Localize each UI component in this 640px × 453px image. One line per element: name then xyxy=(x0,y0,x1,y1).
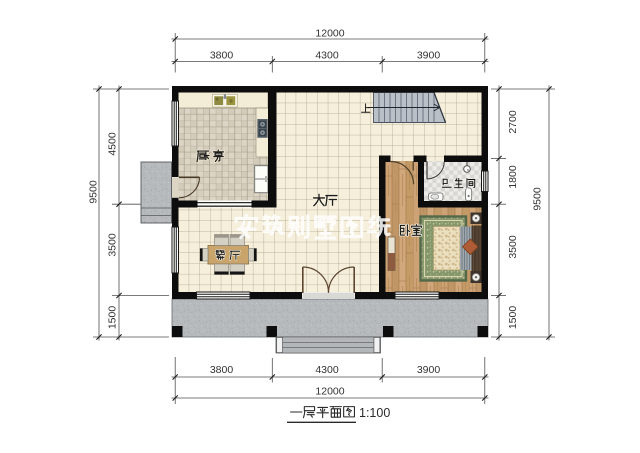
svg-text:3500: 3500 xyxy=(507,235,519,259)
svg-text:4500: 4500 xyxy=(107,132,119,156)
svg-text:9500: 9500 xyxy=(88,180,100,204)
svg-text:2700: 2700 xyxy=(507,110,519,134)
svg-text:3500: 3500 xyxy=(107,233,119,257)
svg-text:12000: 12000 xyxy=(315,386,344,398)
svg-text:1500: 1500 xyxy=(107,306,119,330)
svg-text:3800: 3800 xyxy=(210,364,234,376)
svg-text:4300: 4300 xyxy=(315,364,339,376)
svg-text:3900: 3900 xyxy=(417,364,441,376)
svg-text:1800: 1800 xyxy=(507,165,519,189)
svg-text:1:100: 1:100 xyxy=(359,406,390,420)
svg-text:3900: 3900 xyxy=(417,50,441,62)
svg-text:12000: 12000 xyxy=(315,28,344,40)
svg-text:1500: 1500 xyxy=(507,306,519,330)
svg-text:3800: 3800 xyxy=(210,50,234,62)
svg-text:9500: 9500 xyxy=(532,187,544,211)
svg-text:4300: 4300 xyxy=(315,50,339,62)
